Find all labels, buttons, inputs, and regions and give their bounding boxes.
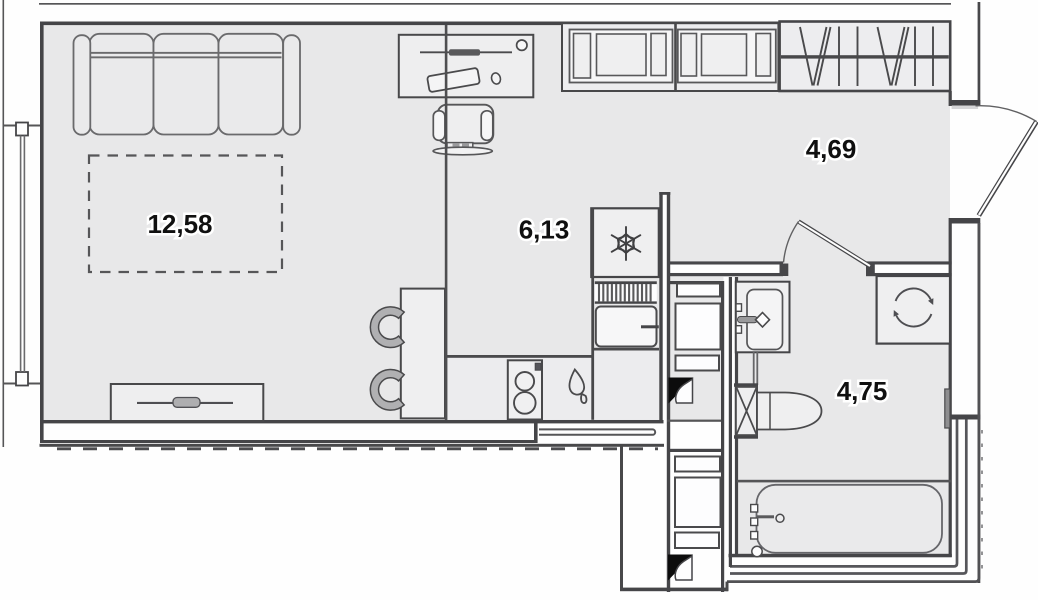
svg-text:4,75: 4,75	[837, 376, 888, 406]
svg-text:6,13: 6,13	[519, 215, 570, 245]
svg-text:12,58: 12,58	[147, 209, 212, 239]
svg-text:4,69: 4,69	[806, 134, 857, 164]
